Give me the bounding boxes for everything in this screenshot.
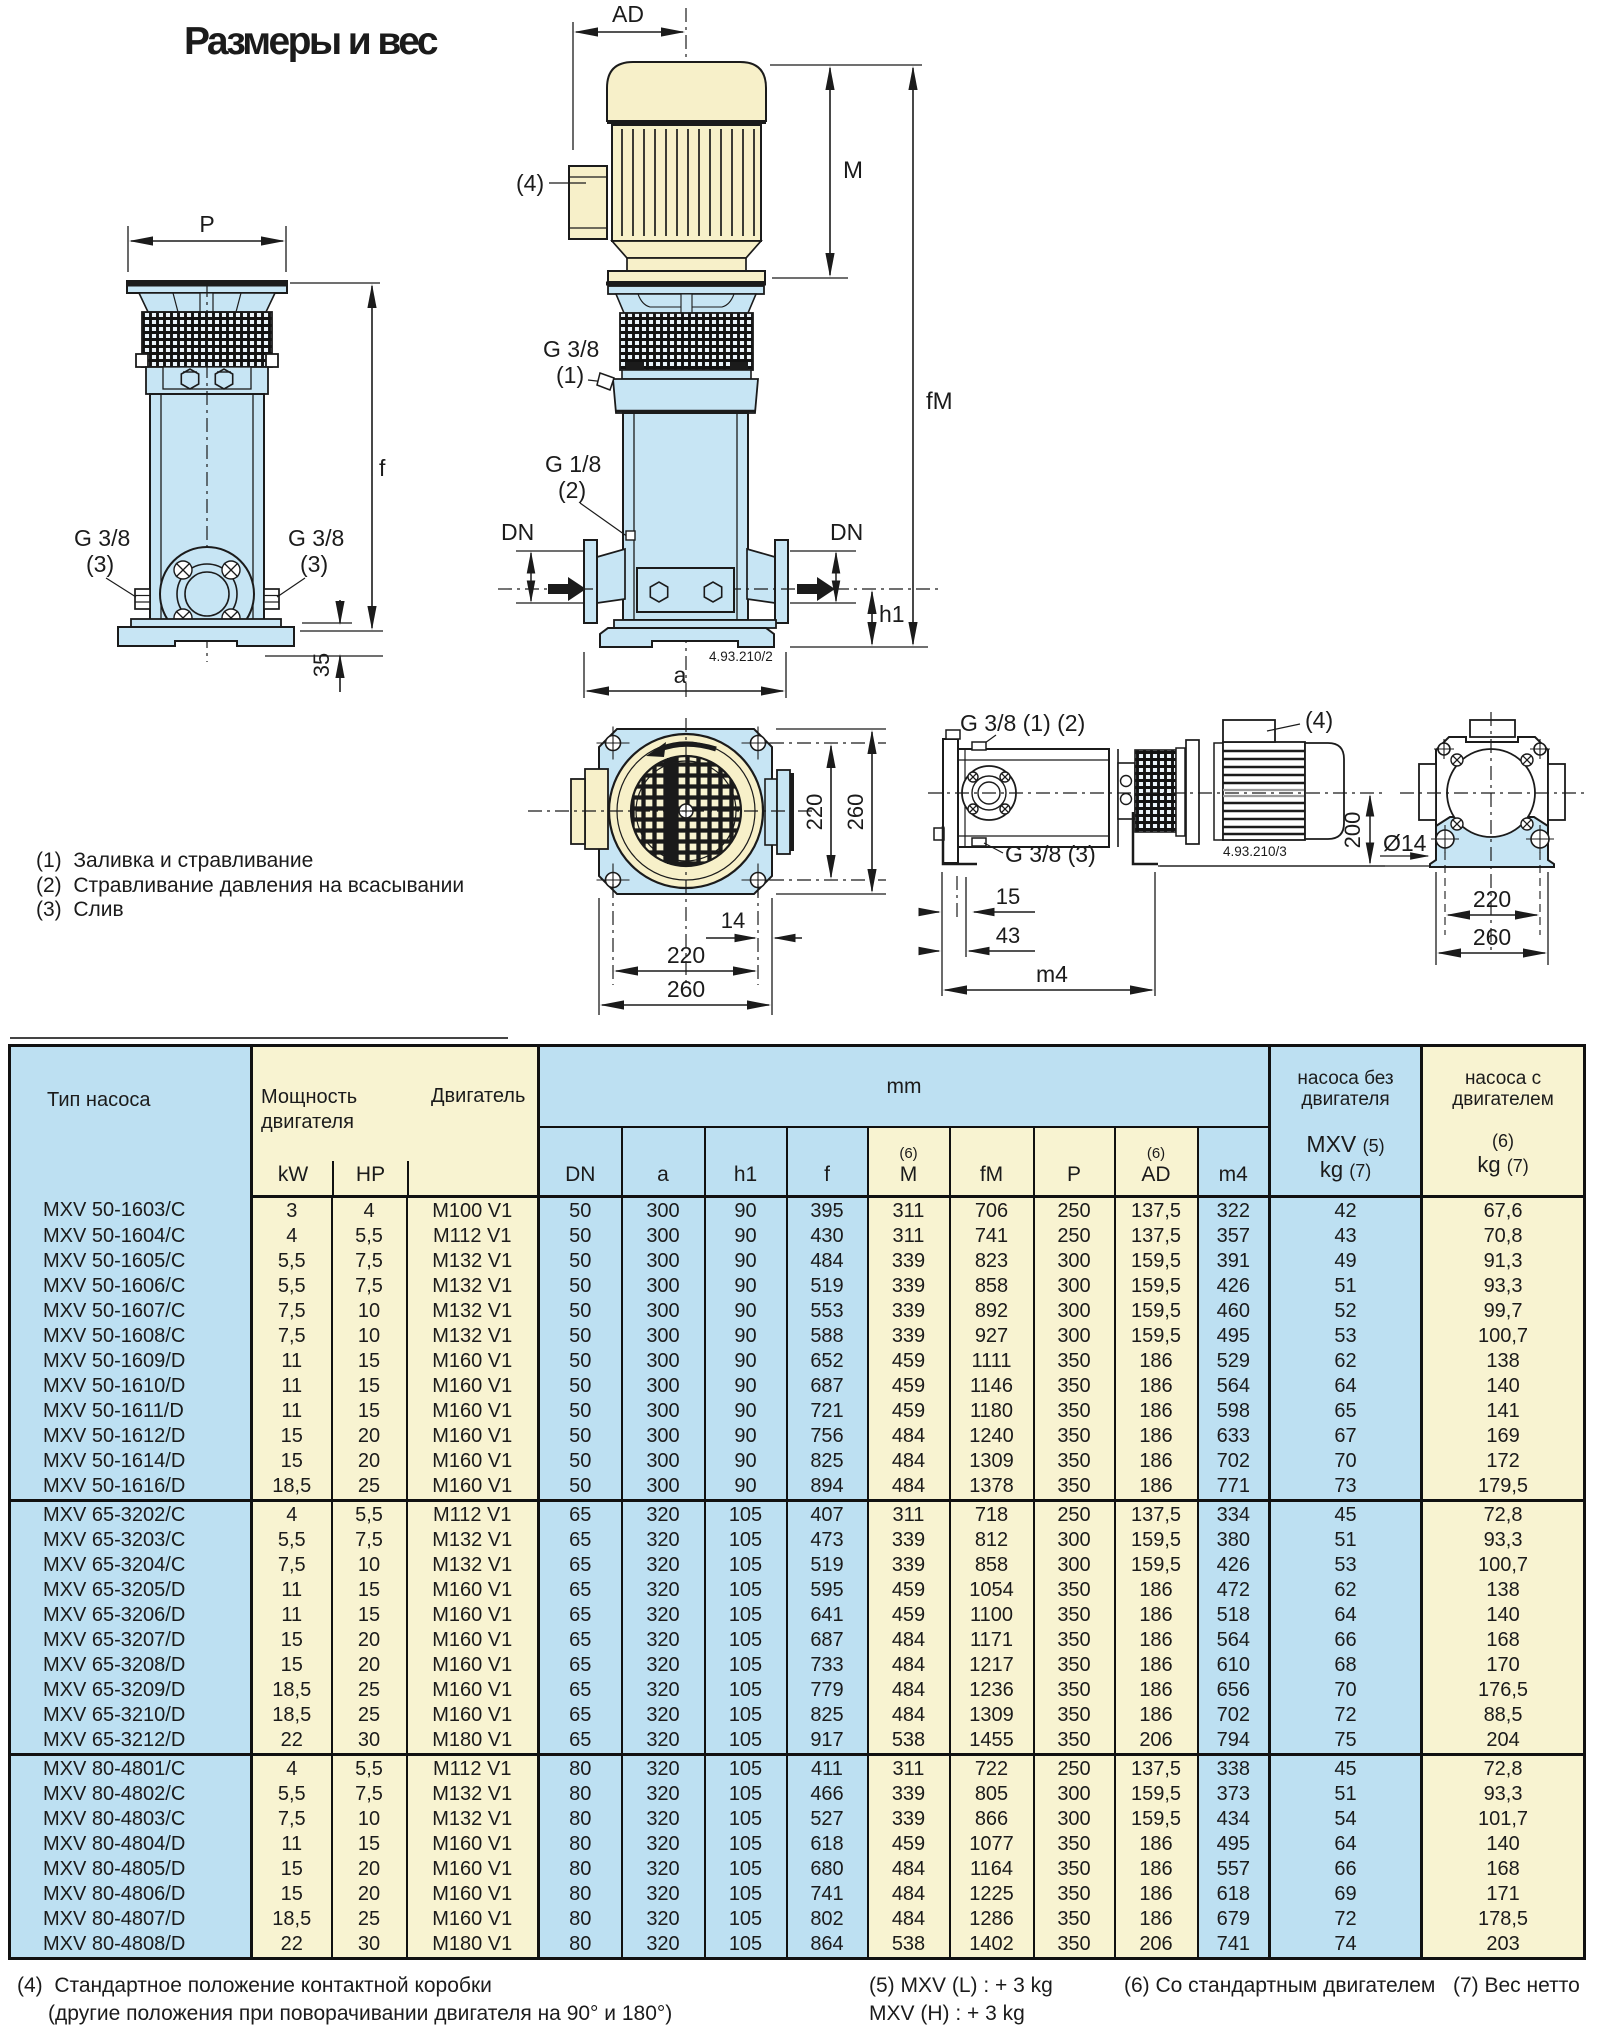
svg-text:P: P <box>199 211 214 237</box>
svg-text:a: a <box>674 662 687 688</box>
svg-text:4.93.210/3: 4.93.210/3 <box>1223 844 1287 859</box>
svg-text:G 3/8 (3): G 3/8 (3) <box>1005 841 1096 867</box>
svg-text:(2): (2) <box>558 477 586 503</box>
svg-text:(3): (3) <box>86 551 114 577</box>
svg-text:f: f <box>379 455 386 481</box>
svg-text:fM: fM <box>926 388 953 415</box>
svg-text:4.93.210/2: 4.93.210/2 <box>709 649 773 664</box>
svg-text:G 1/8: G 1/8 <box>545 451 601 477</box>
svg-text:m4: m4 <box>1036 961 1068 987</box>
svg-text:220: 220 <box>802 794 827 831</box>
svg-text:(4): (4) <box>516 170 544 196</box>
svg-text:260: 260 <box>843 794 868 831</box>
svg-text:DN: DN <box>501 519 534 545</box>
svg-text:14: 14 <box>721 908 745 933</box>
svg-text:(3): (3) <box>300 551 328 577</box>
svg-text:(1): (1) <box>556 362 584 388</box>
svg-text:G 3/8: G 3/8 <box>288 525 344 551</box>
svg-text:220: 220 <box>1473 886 1511 912</box>
svg-text:220: 220 <box>667 942 705 968</box>
svg-text:M: M <box>843 157 863 184</box>
svg-text:h1: h1 <box>879 601 905 627</box>
svg-text:DN: DN <box>830 519 863 545</box>
svg-text:Ø14: Ø14 <box>1383 830 1427 856</box>
svg-text:35: 35 <box>309 653 334 677</box>
svg-text:G 3/8: G 3/8 <box>543 336 599 362</box>
svg-text:43: 43 <box>996 923 1020 948</box>
svg-text:260: 260 <box>667 976 705 1002</box>
svg-text:AD: AD <box>612 1 644 27</box>
svg-text:G 3/8: G 3/8 <box>74 525 130 551</box>
svg-text:(4): (4) <box>1305 707 1333 733</box>
svg-text:G 3/8 (1) (2): G 3/8 (1) (2) <box>960 710 1085 736</box>
svg-text:260: 260 <box>1473 924 1511 950</box>
svg-text:200: 200 <box>1340 812 1365 849</box>
svg-text:15: 15 <box>996 884 1020 909</box>
